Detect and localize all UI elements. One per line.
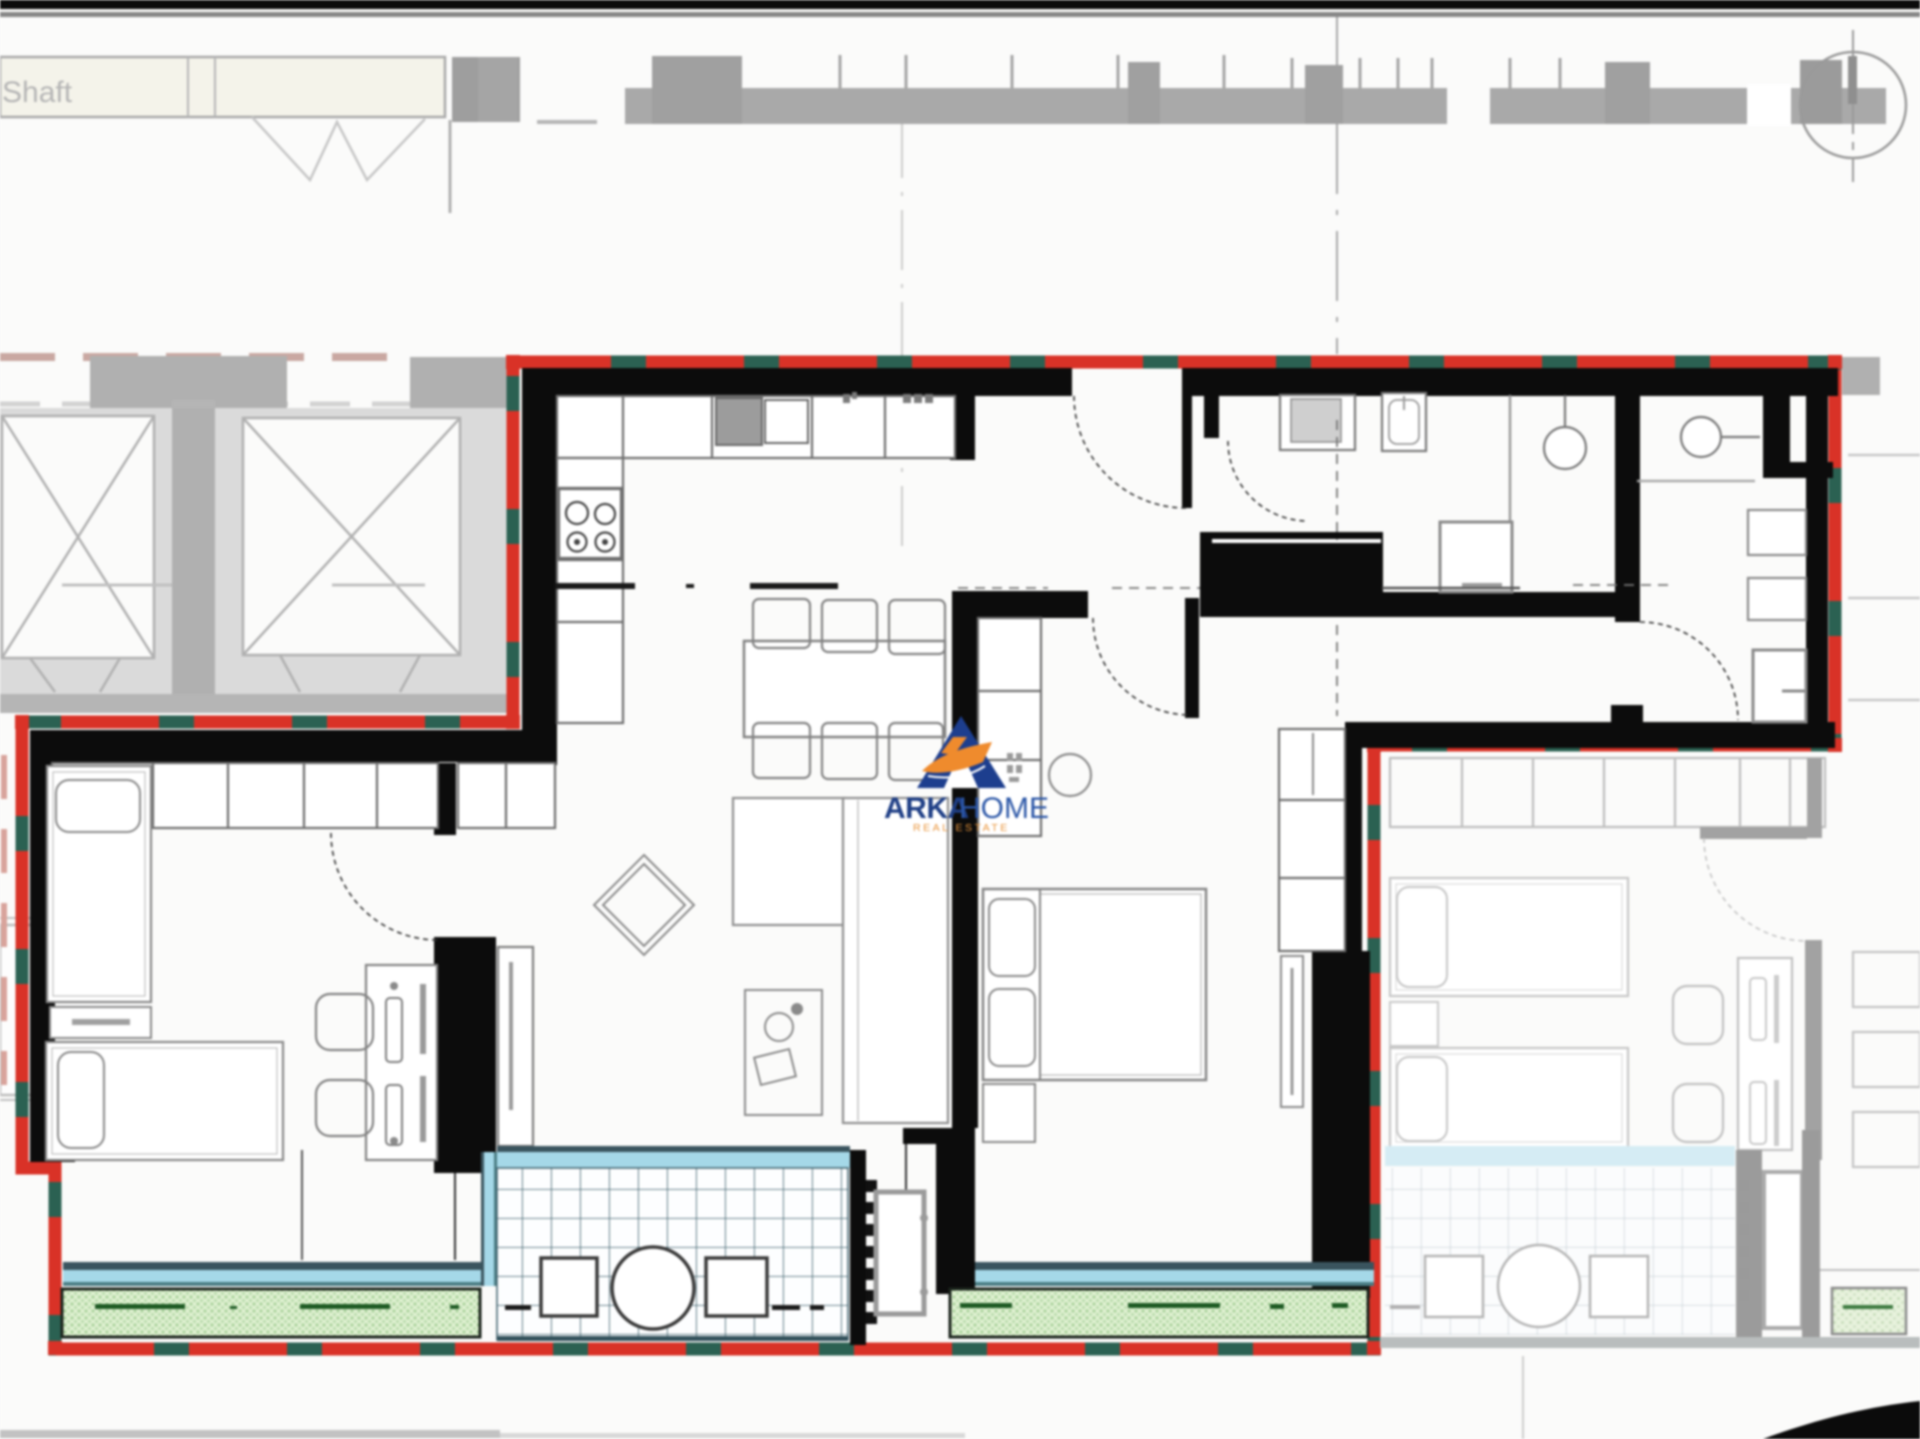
svg-text:ARKA: ARKA [884, 792, 969, 825]
svg-text:Shaft: Shaft [2, 76, 73, 109]
svg-text:REAL ESTATE: REAL ESTATE [913, 822, 1010, 834]
svg-text:HOME: HOME [959, 792, 1049, 825]
